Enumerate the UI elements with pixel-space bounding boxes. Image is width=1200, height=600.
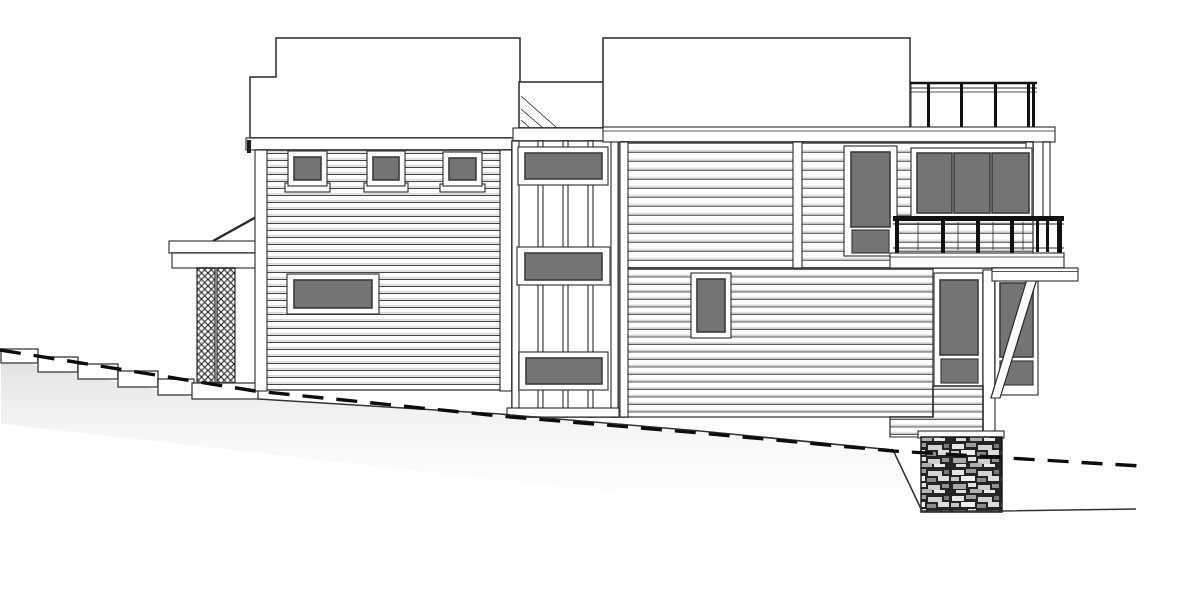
lattice-column-right-strip	[217, 268, 235, 383]
window-pane	[294, 280, 372, 308]
tower-window-1	[518, 147, 608, 185]
balcony-slab	[890, 253, 1064, 268]
railing-post	[1010, 217, 1014, 253]
support-post	[983, 270, 995, 437]
window-pane	[992, 153, 1029, 213]
right-roof	[603, 38, 910, 128]
corner-three-pane-window	[911, 148, 1032, 217]
railing-post	[1036, 218, 1039, 252]
window-pane	[525, 253, 602, 280]
stone-foundation-pier	[921, 437, 1002, 512]
tower-window-2	[517, 247, 610, 285]
left-eave-fascia	[246, 138, 520, 150]
railing-end-post	[1057, 217, 1062, 253]
clerestory-window-2	[364, 151, 408, 192]
elevation-drawing-canvas	[0, 0, 1200, 600]
right-wing-corner-trim	[620, 142, 628, 417]
center-tower	[507, 82, 619, 417]
left-right-corner-trim	[500, 150, 512, 391]
clerestory-window-1	[285, 151, 330, 192]
window-pane	[373, 157, 399, 180]
bay-window-left	[934, 273, 983, 386]
window-pane-upper	[940, 280, 978, 355]
small-window	[691, 273, 731, 338]
railing-post	[927, 84, 930, 127]
railing-post	[941, 217, 945, 253]
window-pane-lower	[852, 230, 889, 253]
window-pane	[917, 153, 952, 213]
window-pane-upper	[851, 152, 890, 227]
tower-eave-fascia	[513, 128, 617, 141]
picture-window	[287, 274, 379, 314]
left-wing	[246, 38, 520, 391]
railing-post	[994, 84, 997, 127]
railing-end-post-double	[1032, 83, 1035, 127]
step	[38, 357, 78, 372]
cantilever-ledge	[992, 268, 1078, 281]
railing-post	[960, 84, 963, 127]
right-eave-fascia	[603, 127, 1055, 142]
batten	[611, 141, 618, 417]
lower-siding-wall	[620, 268, 933, 417]
siding-panel-trim	[793, 142, 802, 268]
porch-fascia-upper	[169, 241, 266, 253]
window-pane	[525, 153, 602, 179]
window-pane	[526, 358, 602, 384]
tower-window-3	[519, 352, 608, 390]
lattice-column-left-strip	[197, 268, 215, 383]
left-roof	[250, 38, 520, 138]
railing-post	[895, 217, 899, 253]
window-pane	[294, 157, 321, 180]
window-pane	[449, 158, 476, 180]
window-pane	[954, 153, 990, 213]
step	[158, 379, 194, 395]
gutter-end-left	[247, 140, 251, 153]
railing-post	[1046, 218, 1049, 252]
step	[78, 364, 118, 379]
railing-post	[976, 217, 980, 253]
porch-fascia-lower	[172, 253, 264, 268]
clerestory-window-3	[440, 152, 485, 192]
left-corner-trim	[255, 150, 267, 391]
tall-window	[844, 146, 897, 256]
corner-trim-b	[1043, 142, 1050, 217]
window-pane-lower	[941, 359, 978, 383]
railing-post	[1027, 83, 1030, 127]
house-side-elevation	[0, 0, 1200, 600]
window-pane	[697, 279, 725, 332]
